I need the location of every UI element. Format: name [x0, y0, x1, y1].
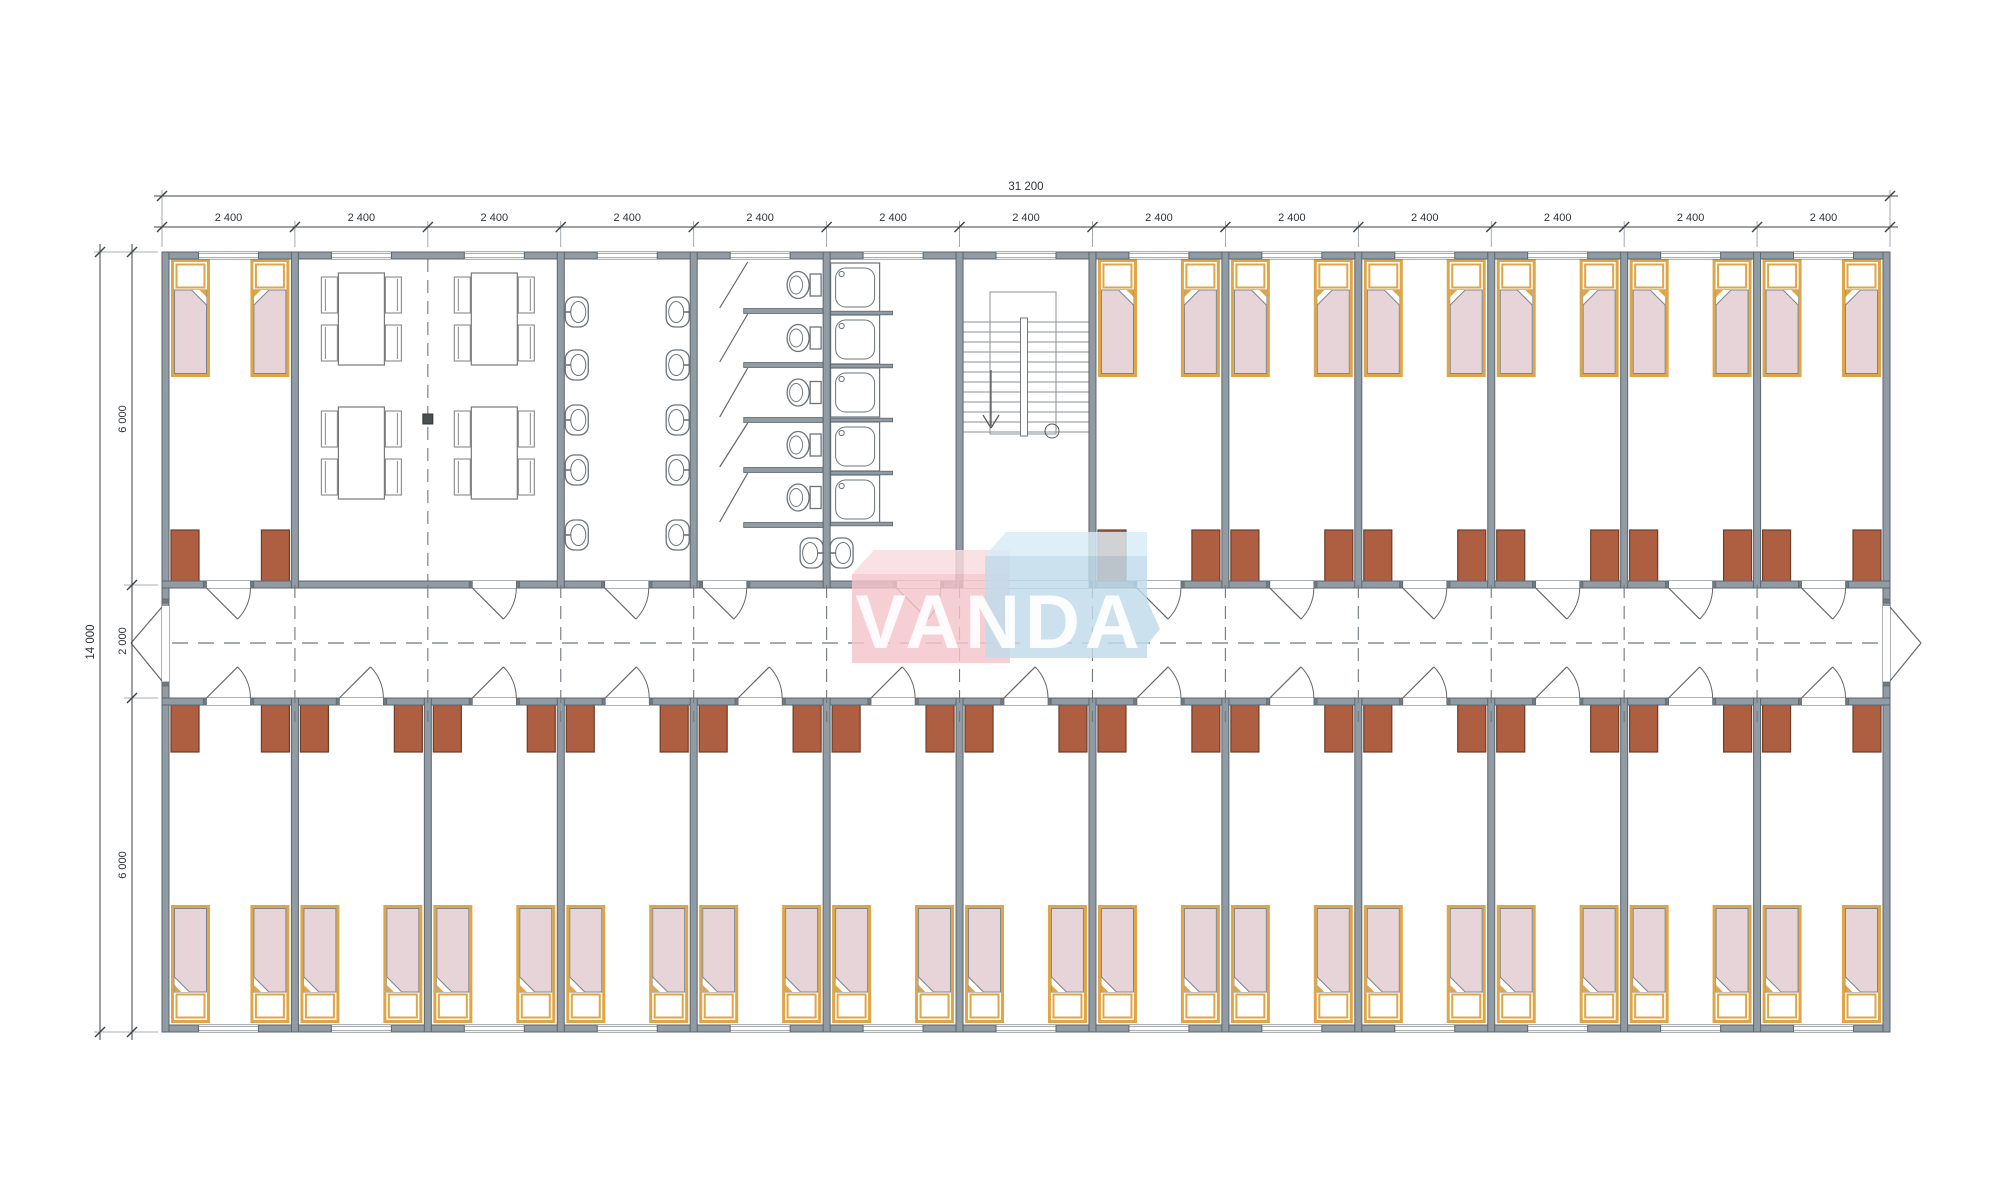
door-opening: [738, 698, 782, 705]
shower-drain: [839, 483, 844, 488]
toilet-bowl-inner: [790, 276, 803, 294]
door-post: [162, 599, 169, 603]
bed-blanket: [1766, 909, 1798, 993]
door-post: [516, 698, 519, 705]
wardrobe: [1231, 530, 1259, 582]
wardrobe: [1458, 530, 1486, 582]
partition-wall-bottom-row: [1488, 698, 1495, 1032]
door-post: [1400, 581, 1403, 588]
bed-blanket: [254, 909, 286, 993]
bed-blanket: [653, 909, 685, 993]
sink-basin: [669, 460, 684, 481]
dimension-label: 2 000: [117, 627, 129, 655]
bed-blanket: [437, 909, 469, 993]
door-post: [1447, 581, 1450, 588]
dimension-label: 2 400: [1544, 212, 1572, 224]
shower-divider: [831, 522, 893, 526]
corridor-exit-opening: [1883, 606, 1890, 682]
bed-pillow: [1369, 265, 1397, 288]
chair: [321, 277, 337, 313]
dimension-label: 2 400: [613, 212, 641, 224]
sink-basin: [803, 543, 818, 564]
door-opening: [703, 581, 747, 588]
wardrobe: [793, 700, 821, 752]
wardrobe: [1763, 700, 1791, 752]
dining-table: [471, 273, 517, 365]
wardrobe: [1591, 530, 1619, 582]
door-opening: [339, 698, 383, 705]
toilet-bowl-inner: [790, 489, 803, 507]
wardrobe: [1853, 530, 1881, 582]
wardrobe: [1325, 700, 1353, 752]
chair: [454, 277, 470, 313]
door-opening: [1403, 698, 1447, 705]
partition-wall-bottom-row: [1222, 698, 1229, 1032]
shower-drain: [839, 376, 844, 381]
door-post: [1713, 698, 1716, 705]
partition-wall-top-row: [1621, 252, 1628, 588]
stall-divider: [744, 309, 823, 314]
bed-pillow: [439, 995, 467, 1018]
door-opening: [1802, 581, 1846, 588]
bed-pillow: [1053, 995, 1081, 1018]
stall-divider: [744, 523, 823, 528]
wardrobe: [1763, 530, 1791, 582]
bed-blanket: [1234, 290, 1266, 374]
shower-divider: [831, 311, 893, 315]
wardrobe: [1364, 700, 1392, 752]
wardrobe: [660, 700, 688, 752]
door-post: [782, 698, 785, 705]
partition-wall-top-row: [1488, 252, 1495, 588]
bed-blanket: [1367, 290, 1399, 374]
wardrobe: [261, 700, 289, 752]
bed-blanket: [1450, 290, 1482, 374]
partition-wall-top-row: [1355, 252, 1362, 588]
bed-blanket: [1766, 290, 1798, 374]
door-post: [250, 698, 253, 705]
door-post: [1532, 698, 1535, 705]
door-post: [1798, 698, 1801, 705]
partition-wall-top-row: [1222, 252, 1229, 588]
door-opening: [206, 698, 250, 705]
bed-pillow: [306, 995, 334, 1018]
wardrobe: [926, 700, 954, 752]
floor-plan-canvas: VANDA2 4002 4002 4002 4002 4002 4002 400…: [0, 0, 2000, 1200]
bed-pillow: [1635, 995, 1663, 1018]
bed-pillow: [1768, 995, 1796, 1018]
door-post: [383, 698, 386, 705]
toilet-bowl-inner: [790, 329, 803, 347]
dimension-label: 2 400: [1411, 212, 1439, 224]
sink-basin: [571, 302, 586, 323]
bed-pillow: [921, 995, 949, 1018]
dining-table: [338, 273, 384, 365]
door-opening: [1802, 698, 1846, 705]
wardrobe: [171, 530, 199, 582]
door-post: [649, 698, 652, 705]
door-post: [602, 698, 605, 705]
door-post: [1447, 698, 1450, 705]
door-post: [203, 698, 206, 705]
sink-basin: [571, 525, 586, 546]
bed-blanket: [1583, 290, 1615, 374]
door-post: [1580, 581, 1583, 588]
partition-wall-bottom-row: [1089, 698, 1096, 1032]
wardrobe: [1630, 530, 1658, 582]
dining-table: [338, 407, 384, 499]
chair: [321, 325, 337, 361]
bed-blanket: [703, 909, 735, 993]
wardrobe: [965, 700, 993, 752]
bed-pillow: [572, 995, 600, 1018]
door-post: [1267, 581, 1270, 588]
dimension-label: 6 000: [117, 851, 129, 879]
toilet-tank: [810, 382, 821, 404]
bed-blanket: [969, 909, 1001, 993]
partition-wall-bottom-row: [291, 698, 298, 1032]
wardrobe: [171, 700, 199, 752]
chair: [454, 459, 470, 495]
door-opening: [472, 581, 516, 588]
toilet-tank: [810, 434, 821, 456]
chair: [321, 459, 337, 495]
toilet-tank: [810, 274, 821, 296]
bed-blanket: [919, 909, 951, 993]
bed-pillow: [1103, 995, 1131, 1018]
toilet-tank: [810, 327, 821, 349]
door-post: [1314, 698, 1317, 705]
bed-pillow: [1718, 265, 1746, 288]
bed-blanket: [304, 909, 336, 993]
bed-pillow: [1319, 995, 1347, 1018]
door-opening: [472, 698, 516, 705]
door-post: [1665, 698, 1668, 705]
partition-wall-bottom-row: [1621, 698, 1628, 1032]
bed-blanket: [175, 290, 207, 374]
wardrobe: [1724, 530, 1752, 582]
door-opening: [1004, 698, 1048, 705]
partition-wall-bottom-row: [1355, 698, 1362, 1032]
door-post: [1883, 682, 1890, 686]
dimension-label: 6 000: [117, 405, 129, 433]
bed-pillow: [1848, 265, 1876, 288]
wardrobe: [1591, 700, 1619, 752]
partition-wall-bottom-row: [690, 698, 697, 1032]
partition-wall-top-row: [291, 252, 298, 588]
bed-pillow: [177, 995, 205, 1018]
bed-blanket: [1633, 290, 1665, 374]
bed-pillow: [1236, 995, 1264, 1018]
sink-basin: [571, 355, 586, 376]
wardrobe: [1497, 530, 1525, 582]
bed-blanket: [1846, 290, 1878, 374]
bed-pillow: [788, 995, 816, 1018]
door-post: [1665, 581, 1668, 588]
bed-blanket: [387, 909, 419, 993]
partition-wall-bottom-row: [1754, 698, 1761, 1032]
door-opening: [1137, 698, 1181, 705]
chair: [454, 411, 470, 447]
partition-wall-bottom-row: [557, 698, 564, 1032]
shower-divider: [831, 471, 893, 475]
door-post: [1134, 698, 1137, 705]
wardrobe: [1192, 530, 1220, 582]
bed-blanket: [1317, 290, 1349, 374]
door-post: [1798, 581, 1801, 588]
bed-pillow: [1502, 265, 1530, 288]
door-post: [469, 698, 472, 705]
wardrobe: [1853, 700, 1881, 752]
dimension-label: 14 000: [85, 624, 97, 659]
bed-blanket: [1846, 909, 1878, 993]
bed-pillow: [1585, 995, 1613, 1018]
wardrobe: [1325, 530, 1353, 582]
bed-blanket: [1450, 909, 1482, 993]
bed-blanket: [1101, 290, 1133, 374]
bed-pillow: [177, 265, 205, 288]
toilet-bowl-inner: [790, 436, 803, 454]
bed-blanket: [1184, 909, 1216, 993]
dimension-label: 2 400: [348, 212, 376, 224]
door-opening: [871, 698, 915, 705]
bed-blanket: [1500, 909, 1532, 993]
door-post: [699, 581, 702, 588]
partition-wall-bottom-row: [823, 698, 830, 1032]
logo-blue-top: [985, 532, 1147, 556]
bed-pillow: [256, 995, 284, 1018]
wardrobe: [1364, 530, 1392, 582]
dimension-label: 2 400: [215, 212, 243, 224]
bed-pillow: [522, 995, 550, 1018]
sink-basin: [669, 410, 684, 431]
chair: [518, 325, 534, 361]
wardrobe: [394, 700, 422, 752]
door-post: [747, 581, 750, 588]
bed-blanket: [570, 909, 602, 993]
door-post: [1181, 698, 1184, 705]
door-post: [1267, 698, 1270, 705]
bed-blanket: [1051, 909, 1083, 993]
dimension-label: 2 400: [481, 212, 509, 224]
door-post: [469, 581, 472, 588]
bed-blanket: [175, 909, 207, 993]
bed-pillow: [1768, 265, 1796, 288]
bed-pillow: [1718, 995, 1746, 1018]
door-post: [1181, 581, 1184, 588]
stall-divider: [744, 363, 823, 368]
door-opening: [605, 698, 649, 705]
door-opening: [1536, 581, 1580, 588]
shower-divider: [831, 364, 893, 368]
toilet-bowl-inner: [790, 384, 803, 402]
door-opening: [1403, 581, 1447, 588]
dimension-label: 2 400: [1278, 212, 1306, 224]
bed-pillow: [1585, 265, 1613, 288]
wardrobe: [1630, 700, 1658, 752]
door-post: [602, 581, 605, 588]
door-post: [1001, 698, 1004, 705]
sink-basin: [669, 302, 684, 323]
toilet-tank: [810, 487, 821, 509]
bed-pillow: [1502, 995, 1530, 1018]
door-opening: [1669, 698, 1713, 705]
wardrobe: [699, 700, 727, 752]
shower-drain: [839, 271, 844, 276]
dining-table: [471, 407, 517, 499]
dimension-label: 2 400: [746, 212, 774, 224]
door-opening: [1270, 581, 1314, 588]
bed-pillow: [1635, 265, 1663, 288]
corridor-exit-opening: [162, 606, 169, 682]
door-post: [1846, 698, 1849, 705]
wardrobe: [1497, 700, 1525, 752]
bed-blanket: [1583, 909, 1615, 993]
bed-blanket: [1101, 909, 1133, 993]
door-post: [1400, 698, 1403, 705]
door-post: [1713, 581, 1716, 588]
bed-pillow: [1848, 995, 1876, 1018]
bed-pillow: [1103, 265, 1131, 288]
wardrobe: [1724, 700, 1752, 752]
bed-blanket: [1633, 909, 1665, 993]
bed-pillow: [1186, 265, 1214, 288]
door-post: [1314, 581, 1317, 588]
dimension-label: 2 400: [879, 212, 907, 224]
bed-blanket: [520, 909, 552, 993]
dimension-label: 2 400: [1145, 212, 1173, 224]
door-post: [336, 698, 339, 705]
wardrobe: [261, 530, 289, 582]
bed-pillow: [256, 265, 284, 288]
bed-blanket: [1716, 290, 1748, 374]
wardrobe: [300, 700, 328, 752]
bed-blanket: [1184, 290, 1216, 374]
chair: [385, 325, 401, 361]
sink-basin: [571, 460, 586, 481]
sink-basin: [836, 543, 851, 564]
chair: [385, 411, 401, 447]
bed-pillow: [1186, 995, 1214, 1018]
wardrobe: [527, 700, 555, 752]
stall-divider: [744, 418, 823, 423]
dimension-label: 2 400: [1677, 212, 1705, 224]
door-post: [1532, 581, 1535, 588]
chair: [518, 277, 534, 313]
bed-pillow: [705, 995, 733, 1018]
logo-text: VANDA: [855, 580, 1145, 665]
door-opening: [206, 581, 250, 588]
wardrobe: [1231, 700, 1259, 752]
door-post: [162, 682, 169, 686]
dimension-label: 2 400: [1810, 212, 1838, 224]
chair: [454, 325, 470, 361]
bed-pillow: [1319, 265, 1347, 288]
wardrobe: [433, 700, 461, 752]
wardrobe: [566, 700, 594, 752]
floor-plan-page: VANDA2 4002 4002 4002 4002 4002 4002 400…: [0, 0, 2000, 1200]
door-post: [735, 698, 738, 705]
partition-wall-top-row: [1754, 252, 1761, 588]
wardrobe: [1059, 700, 1087, 752]
door-opening: [1536, 698, 1580, 705]
door-post: [516, 581, 519, 588]
sink-basin: [669, 525, 684, 546]
chair: [321, 411, 337, 447]
bed-blanket: [1716, 909, 1748, 993]
stall-divider: [744, 468, 823, 473]
bed-pillow: [1236, 265, 1264, 288]
bed-pillow: [971, 995, 999, 1018]
bed-blanket: [1367, 909, 1399, 993]
sink-basin: [669, 355, 684, 376]
door-post: [203, 581, 206, 588]
door-post: [1883, 599, 1890, 603]
chair: [518, 459, 534, 495]
partition-wall-top-row: [690, 252, 697, 588]
door-post: [1048, 698, 1051, 705]
bed-pillow: [1452, 995, 1480, 1018]
bed-pillow: [1369, 995, 1397, 1018]
wardrobe: [1458, 700, 1486, 752]
chair: [385, 459, 401, 495]
bed-blanket: [836, 909, 868, 993]
partition-wall-top-row: [823, 252, 830, 588]
wardrobe: [1098, 700, 1126, 752]
door-post: [1580, 698, 1583, 705]
door-opening: [605, 581, 649, 588]
partition-wall-top-row: [956, 252, 963, 588]
wardrobe: [1192, 700, 1220, 752]
bed-pillow: [838, 995, 866, 1018]
door-post: [1846, 581, 1849, 588]
bed-blanket: [254, 290, 286, 374]
bed-pillow: [1452, 265, 1480, 288]
bed-blanket: [1317, 909, 1349, 993]
partition-wall-top-row: [557, 252, 564, 588]
sink-basin: [571, 410, 586, 431]
bed-blanket: [1500, 290, 1532, 374]
bed-blanket: [1234, 909, 1266, 993]
shower-divider: [831, 418, 893, 422]
door-post: [868, 698, 871, 705]
door-post: [649, 581, 652, 588]
chair: [385, 277, 401, 313]
wardrobe: [832, 700, 860, 752]
bed-pillow: [389, 995, 417, 1018]
bed-pillow: [655, 995, 683, 1018]
door-post: [250, 581, 253, 588]
joint-marker: [423, 414, 433, 424]
dimension-label: 31 200: [1008, 181, 1043, 193]
partition-wall-bottom-row: [956, 698, 963, 1032]
bed-blanket: [786, 909, 818, 993]
chair: [518, 411, 534, 447]
partition-wall-bottom-row: [424, 698, 431, 1032]
door-opening: [1270, 698, 1314, 705]
stair-rail: [1021, 318, 1028, 436]
door-post: [915, 698, 918, 705]
shower-drain: [839, 323, 844, 328]
dimension-label: 2 400: [1012, 212, 1040, 224]
door-opening: [1669, 581, 1713, 588]
shower-drain: [839, 430, 844, 435]
